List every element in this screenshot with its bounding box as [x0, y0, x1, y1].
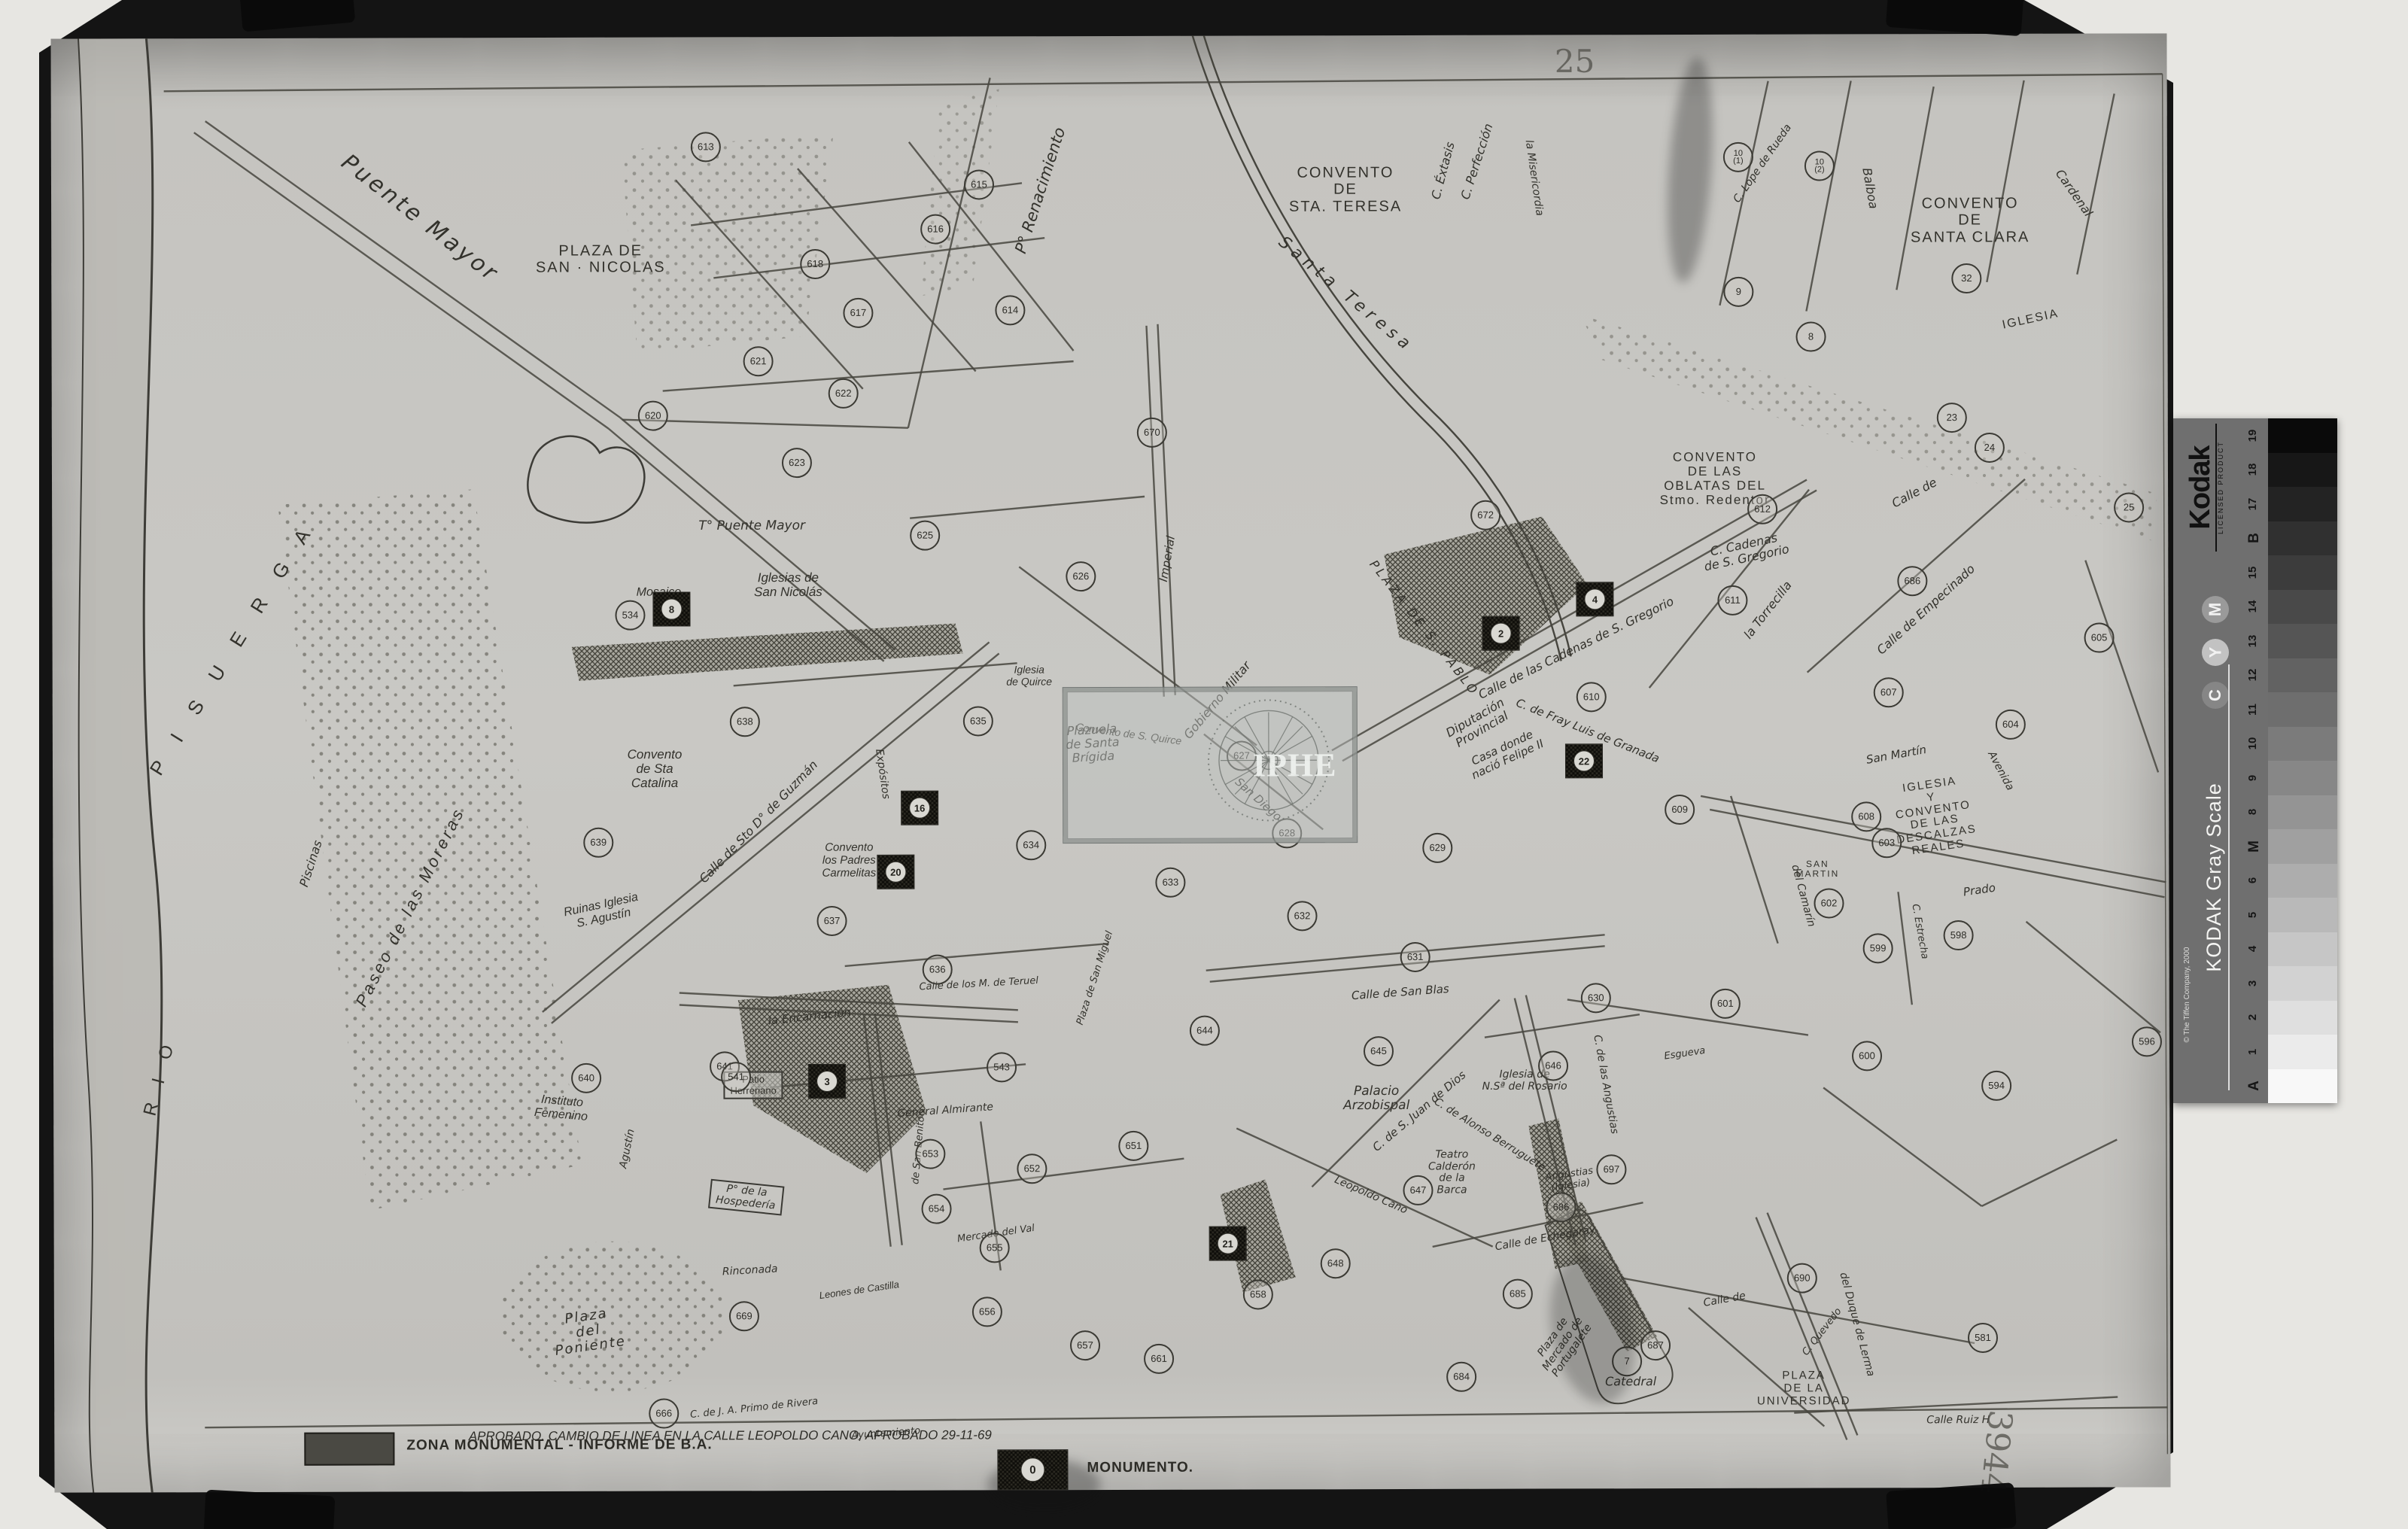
- gray-step: [2268, 1069, 2337, 1104]
- tape-clip-bottom-right: [1886, 1482, 2017, 1529]
- parcel-number-circle: 636: [923, 955, 953, 985]
- parcel-number-circle: 594: [1981, 1071, 2011, 1101]
- parcel-number-circle: 669: [729, 1301, 759, 1331]
- kodak-gray-steps: [2268, 418, 2337, 1103]
- parcel-number-circle: 686: [1546, 1192, 1576, 1222]
- monument-number: 4: [1584, 588, 1605, 609]
- legend-monument-symbol: 0: [997, 1449, 1068, 1490]
- parcel-number-circle: 626: [1066, 561, 1096, 591]
- parcel-number-circle: 616: [920, 214, 950, 245]
- map-label: IGLESIA Y CONVENTO DE LAS DESCALZAS REAL…: [1889, 774, 1979, 860]
- monument-number: 22: [1573, 750, 1595, 771]
- parcel-number-circle: 670: [1137, 418, 1167, 448]
- parcel-number-circle: 655: [980, 1233, 1010, 1263]
- monument-number: 8: [661, 598, 682, 619]
- parcel-number-circle: 640: [571, 1063, 601, 1093]
- parcel-number-circle: 618: [800, 249, 830, 279]
- scale-mark-13: 13: [2246, 628, 2261, 654]
- parcel-number-circle: 630: [1581, 983, 1611, 1013]
- parcel-number-circle: 605: [2084, 623, 2115, 653]
- gray-step: [2268, 590, 2337, 625]
- parcel-number-circle: 685: [1503, 1279, 1533, 1309]
- parcel-number-circle: 652: [1017, 1154, 1047, 1184]
- parcel-number-circle: 599: [1863, 933, 1893, 963]
- parcel-number-circle: 608: [1851, 801, 1881, 831]
- map-label: 25: [1555, 44, 1595, 79]
- scale-mark-19: 19: [2246, 423, 2261, 448]
- parcel-number-circle: 614: [995, 295, 1025, 325]
- parcel-number-circle: 690: [1787, 1263, 1817, 1293]
- gray-step: [2268, 658, 2337, 693]
- gray-step: [2268, 932, 2337, 967]
- scale-mark-14: 14: [2246, 594, 2261, 619]
- parcel-number-circle: 601: [1710, 989, 1741, 1019]
- parcel-number-circle: 657: [1070, 1330, 1100, 1360]
- legend-zona-swatch: [304, 1432, 394, 1465]
- scale-mark-15: 15: [2246, 560, 2261, 585]
- parcel-number-circle: 656: [972, 1296, 1002, 1327]
- legend-monumento-label: MONUMENTO.: [1087, 1460, 1193, 1476]
- gray-step: [2268, 795, 2337, 830]
- parcel-number-circle: 613: [691, 132, 721, 162]
- tape-clip-bottom-left: [204, 1490, 336, 1529]
- scale-mark-3: 3: [2246, 971, 2261, 996]
- parcel-number-circle: 644: [1190, 1016, 1220, 1046]
- gray-step: [2268, 1035, 2337, 1069]
- parcel-number-circle: 635: [963, 706, 993, 736]
- parcel-number-circle: 629: [1422, 833, 1452, 863]
- map-label: Iglesia de Quirce: [1006, 664, 1052, 689]
- parcel-number-circle: 638: [730, 707, 760, 737]
- scale-mark-10: 10: [2246, 731, 2261, 756]
- gray-step: [2268, 624, 2337, 658]
- parcel-number-circle: 607: [1874, 677, 1904, 707]
- monument-marker: 22: [1565, 743, 1603, 778]
- parcel-number-circle: 581: [1968, 1323, 1998, 1353]
- parcel-number-circle: 25: [2114, 492, 2144, 522]
- map-label: Convento de Sta Catalina: [628, 747, 683, 790]
- monument-marker: 16: [901, 791, 938, 825]
- monument-marker: 20: [877, 855, 914, 889]
- gray-step: [2268, 521, 2337, 556]
- map-label: Palacio Arzobispal: [1343, 1084, 1409, 1113]
- scale-mark-A: A: [2246, 1073, 2261, 1099]
- parcel-number-circle: 622: [829, 378, 859, 409]
- scale-mark-11: 11: [2246, 697, 2261, 722]
- map-label: T° Puente Mayor: [698, 519, 805, 533]
- parcel-number-circle: 617: [843, 298, 873, 328]
- parcel-number-circle: 32: [1951, 263, 1981, 293]
- parcel-number-circle: 625: [910, 521, 940, 551]
- map-label: Instituto Femenino: [534, 1093, 589, 1124]
- monument-marker: 2: [1482, 616, 1519, 651]
- parcel-number-circle: 634: [1016, 830, 1046, 860]
- parcel-number-circle: 534: [615, 600, 645, 631]
- map-label: Teatro Calderón de la Barca: [1428, 1149, 1476, 1196]
- scale-mark-18: 18: [2246, 457, 2261, 482]
- parcel-number-circle: 543: [987, 1052, 1017, 1082]
- parcel-number-circle: 687: [1640, 1330, 1671, 1360]
- parcel-number-circle: 633: [1155, 868, 1185, 898]
- monument-marker: 3: [808, 1064, 846, 1099]
- scale-mark-9: 9: [2246, 765, 2261, 791]
- gray-step: [2268, 555, 2337, 590]
- parcel-number-circle: 609: [1665, 795, 1695, 825]
- parcel-number-circle: 600: [1852, 1041, 1882, 1071]
- parcel-number-circle: 598: [1944, 920, 1974, 950]
- parcel-number-circle: 602: [1814, 888, 1844, 918]
- iphe-watermark: IPHE: [1063, 686, 1358, 844]
- parcel-number-circle: 654: [921, 1194, 951, 1224]
- parcel-number-circle: 632: [1287, 901, 1317, 931]
- monument-number: 3: [816, 1071, 838, 1092]
- parcel-number-circle: 645: [1364, 1036, 1394, 1066]
- parcel-number-circle: 620: [638, 401, 668, 431]
- parcel-number-circle: 639: [583, 828, 613, 858]
- gray-step: [2268, 487, 2337, 521]
- parcel-number-circle: 661: [1144, 1344, 1174, 1374]
- scale-mark-2: 2: [2246, 1005, 2261, 1030]
- monument-marker: 4: [1576, 582, 1613, 616]
- scale-mark-5: 5: [2246, 902, 2261, 928]
- kodak-copyright: © The Tiffen Company, 2000: [2183, 910, 2195, 1080]
- parcel-number-circle: 596: [2132, 1026, 2162, 1056]
- scale-mark-6: 6: [2246, 868, 2261, 893]
- parcel-number-circle: 651: [1118, 1131, 1148, 1161]
- parcel-number-circle: 637: [816, 906, 847, 936]
- scale-mark-1: 1: [2246, 1039, 2261, 1065]
- legend-zona-label: ZONA MONUMENTAL - INFORME DE B.A.: [406, 1436, 712, 1454]
- monument-number: 21: [1218, 1233, 1239, 1254]
- parcel-number-circle: 23: [1937, 403, 1967, 433]
- map-label: Convento los Padres Carmelitas: [822, 842, 876, 880]
- iphe-seal-text: IPHE: [1253, 746, 1337, 784]
- map-label: PLAZA DE LA UNIVERSIDAD: [1757, 1369, 1851, 1408]
- monument-number: 16: [909, 798, 930, 819]
- parcel-number-circle: 9: [1723, 277, 1753, 307]
- parcel-number-circle: 541: [721, 1062, 751, 1092]
- scale-mark-17: 17: [2246, 491, 2261, 517]
- gray-step: [2268, 966, 2337, 1001]
- monument-marker: 21: [1209, 1227, 1247, 1261]
- scale-mark-B: B: [2246, 525, 2261, 551]
- scale-mark-M: M: [2246, 834, 2261, 859]
- parcel-number-circle: 646: [1538, 1050, 1568, 1081]
- monument-number: 20: [885, 862, 906, 883]
- parcel-number-circle: 623: [782, 448, 812, 478]
- parcel-number-circle: 653: [915, 1139, 945, 1169]
- gray-step: [2268, 864, 2337, 898]
- kodak-gray-scale: Kodak LICENSED PRODUCT MYC KODAK Gray Sc…: [2173, 418, 2337, 1103]
- kodak-circle-y: Y: [2202, 639, 2229, 666]
- gray-step: [2268, 692, 2337, 727]
- scale-mark-8: 8: [2246, 799, 2261, 825]
- parcel-number-circle: 648: [1321, 1248, 1351, 1278]
- kodak-circle-m: M: [2202, 596, 2229, 623]
- parcel-number-circle: 631: [1400, 942, 1431, 972]
- gray-step: [2268, 727, 2337, 761]
- gray-step: [2268, 829, 2337, 864]
- gray-step: [2268, 898, 2337, 932]
- parcel-number-circle: 611: [1717, 585, 1747, 616]
- parcel-number-circle: 621: [743, 346, 774, 376]
- kodak-logo: Kodak LICENSED PRODUCT: [2186, 424, 2225, 552]
- parcel-number-circle: 697: [1596, 1154, 1626, 1184]
- parcel-number-circle: 647: [1403, 1175, 1433, 1205]
- gray-step: [2268, 1001, 2337, 1035]
- map-label: Iglesias de San Nicolás: [754, 570, 822, 599]
- gray-step: [2268, 453, 2337, 488]
- parcel-number-circle: 686: [1897, 566, 1927, 596]
- scale-mark-12: 12: [2246, 662, 2261, 688]
- monument-number: 2: [1491, 623, 1512, 644]
- gray-step: [2268, 761, 2337, 795]
- map-label: 3944: [1973, 1409, 2018, 1496]
- scanned-map-page: Puente MayorP° RenacimientoPLAZA DE SAN …: [0, 0, 2408, 1529]
- monument-marker: 8: [652, 591, 690, 626]
- parcel-number-circle: 10 (1): [1723, 142, 1753, 172]
- map-sheet: Puente MayorP° RenacimientoPLAZA DE SAN …: [50, 33, 2170, 1492]
- parcel-number-circle: 684: [1446, 1362, 1476, 1392]
- parcel-number-circle: 24: [1975, 433, 2005, 463]
- parcel-number-circle: 603: [1871, 828, 1902, 858]
- parcel-number-circle: 666: [649, 1399, 679, 1429]
- parcel-number-circle: 658: [1243, 1279, 1273, 1309]
- parcel-number-circle: 672: [1470, 500, 1500, 530]
- parcel-number-circle: 604: [1996, 710, 2026, 740]
- gray-step: [2268, 418, 2337, 453]
- map-label: CONVENTO DE STA. TERESA: [1289, 164, 1402, 215]
- parcel-number-circle: 615: [964, 169, 994, 199]
- kodak-title: KODAK Gray Scale: [2203, 664, 2230, 1090]
- river-inlet: [528, 436, 644, 522]
- map-label: PLAZA DE SAN · NICOLAS: [536, 242, 666, 276]
- parcel-number-circle: 8: [1795, 322, 1826, 352]
- parcel-number-circle: 10 (2): [1804, 150, 1835, 181]
- parcel-number-circle: 612: [1747, 494, 1777, 524]
- unbuilt-street-band: [1580, 313, 2157, 542]
- map-label: CONVENTO DE SANTA CLARA: [1911, 195, 2030, 246]
- scale-mark-4: 4: [2246, 936, 2261, 962]
- parcel-number-circle: 610: [1576, 682, 1607, 712]
